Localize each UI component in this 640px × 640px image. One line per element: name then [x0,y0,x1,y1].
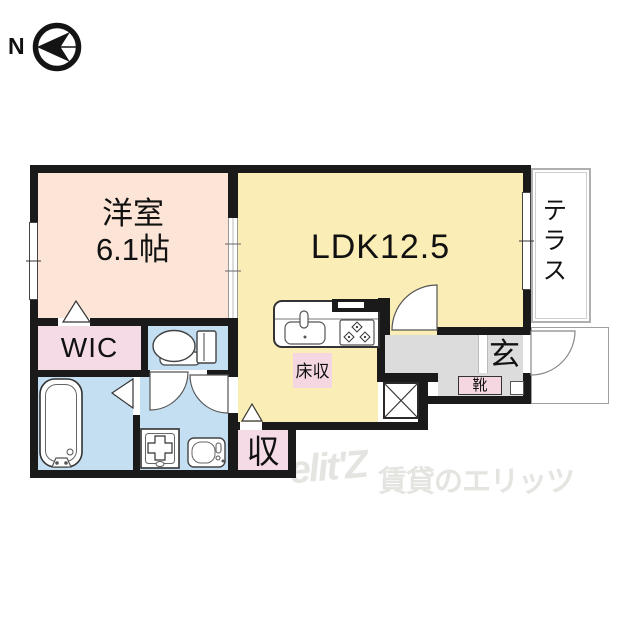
wic-label: WIC [38,332,141,364]
wic-door-triangle [63,301,90,322]
western-room-name: 洋室 [38,196,228,232]
washbasin [188,438,225,467]
floorplan-canvas: elit'Z 賃貸のエリッツ [0,0,640,640]
front-door-arc [531,331,575,375]
entrance-label: 玄 [486,337,523,373]
washroom-door-arc [190,375,228,413]
floor-storage-label: 床収 [293,362,332,382]
terrace-label: テラス [538,197,567,317]
western-room-size: 6.1帖 [38,232,228,268]
western-room-label: 洋室 6.1帖 [38,196,228,267]
shoe-cabinet-label: 靴 [458,377,502,394]
storage-door-triangle [242,404,262,421]
north-compass-icon [36,26,79,69]
plan-symbols-layer [0,0,640,640]
toilet-door-arc [150,372,188,410]
toilet [153,331,216,366]
compass-north-label: N [8,33,25,59]
kitchen-stove [340,320,374,345]
ldk-label: LDK12.5 [238,228,523,267]
bathtub [40,379,82,467]
ldk-hall-door-arc [392,285,437,330]
washing-machine-pan [141,429,179,468]
refrigerator-space-x [384,383,418,418]
storage-label: 収 [238,433,288,471]
bathroom-door-triangle [112,379,133,408]
